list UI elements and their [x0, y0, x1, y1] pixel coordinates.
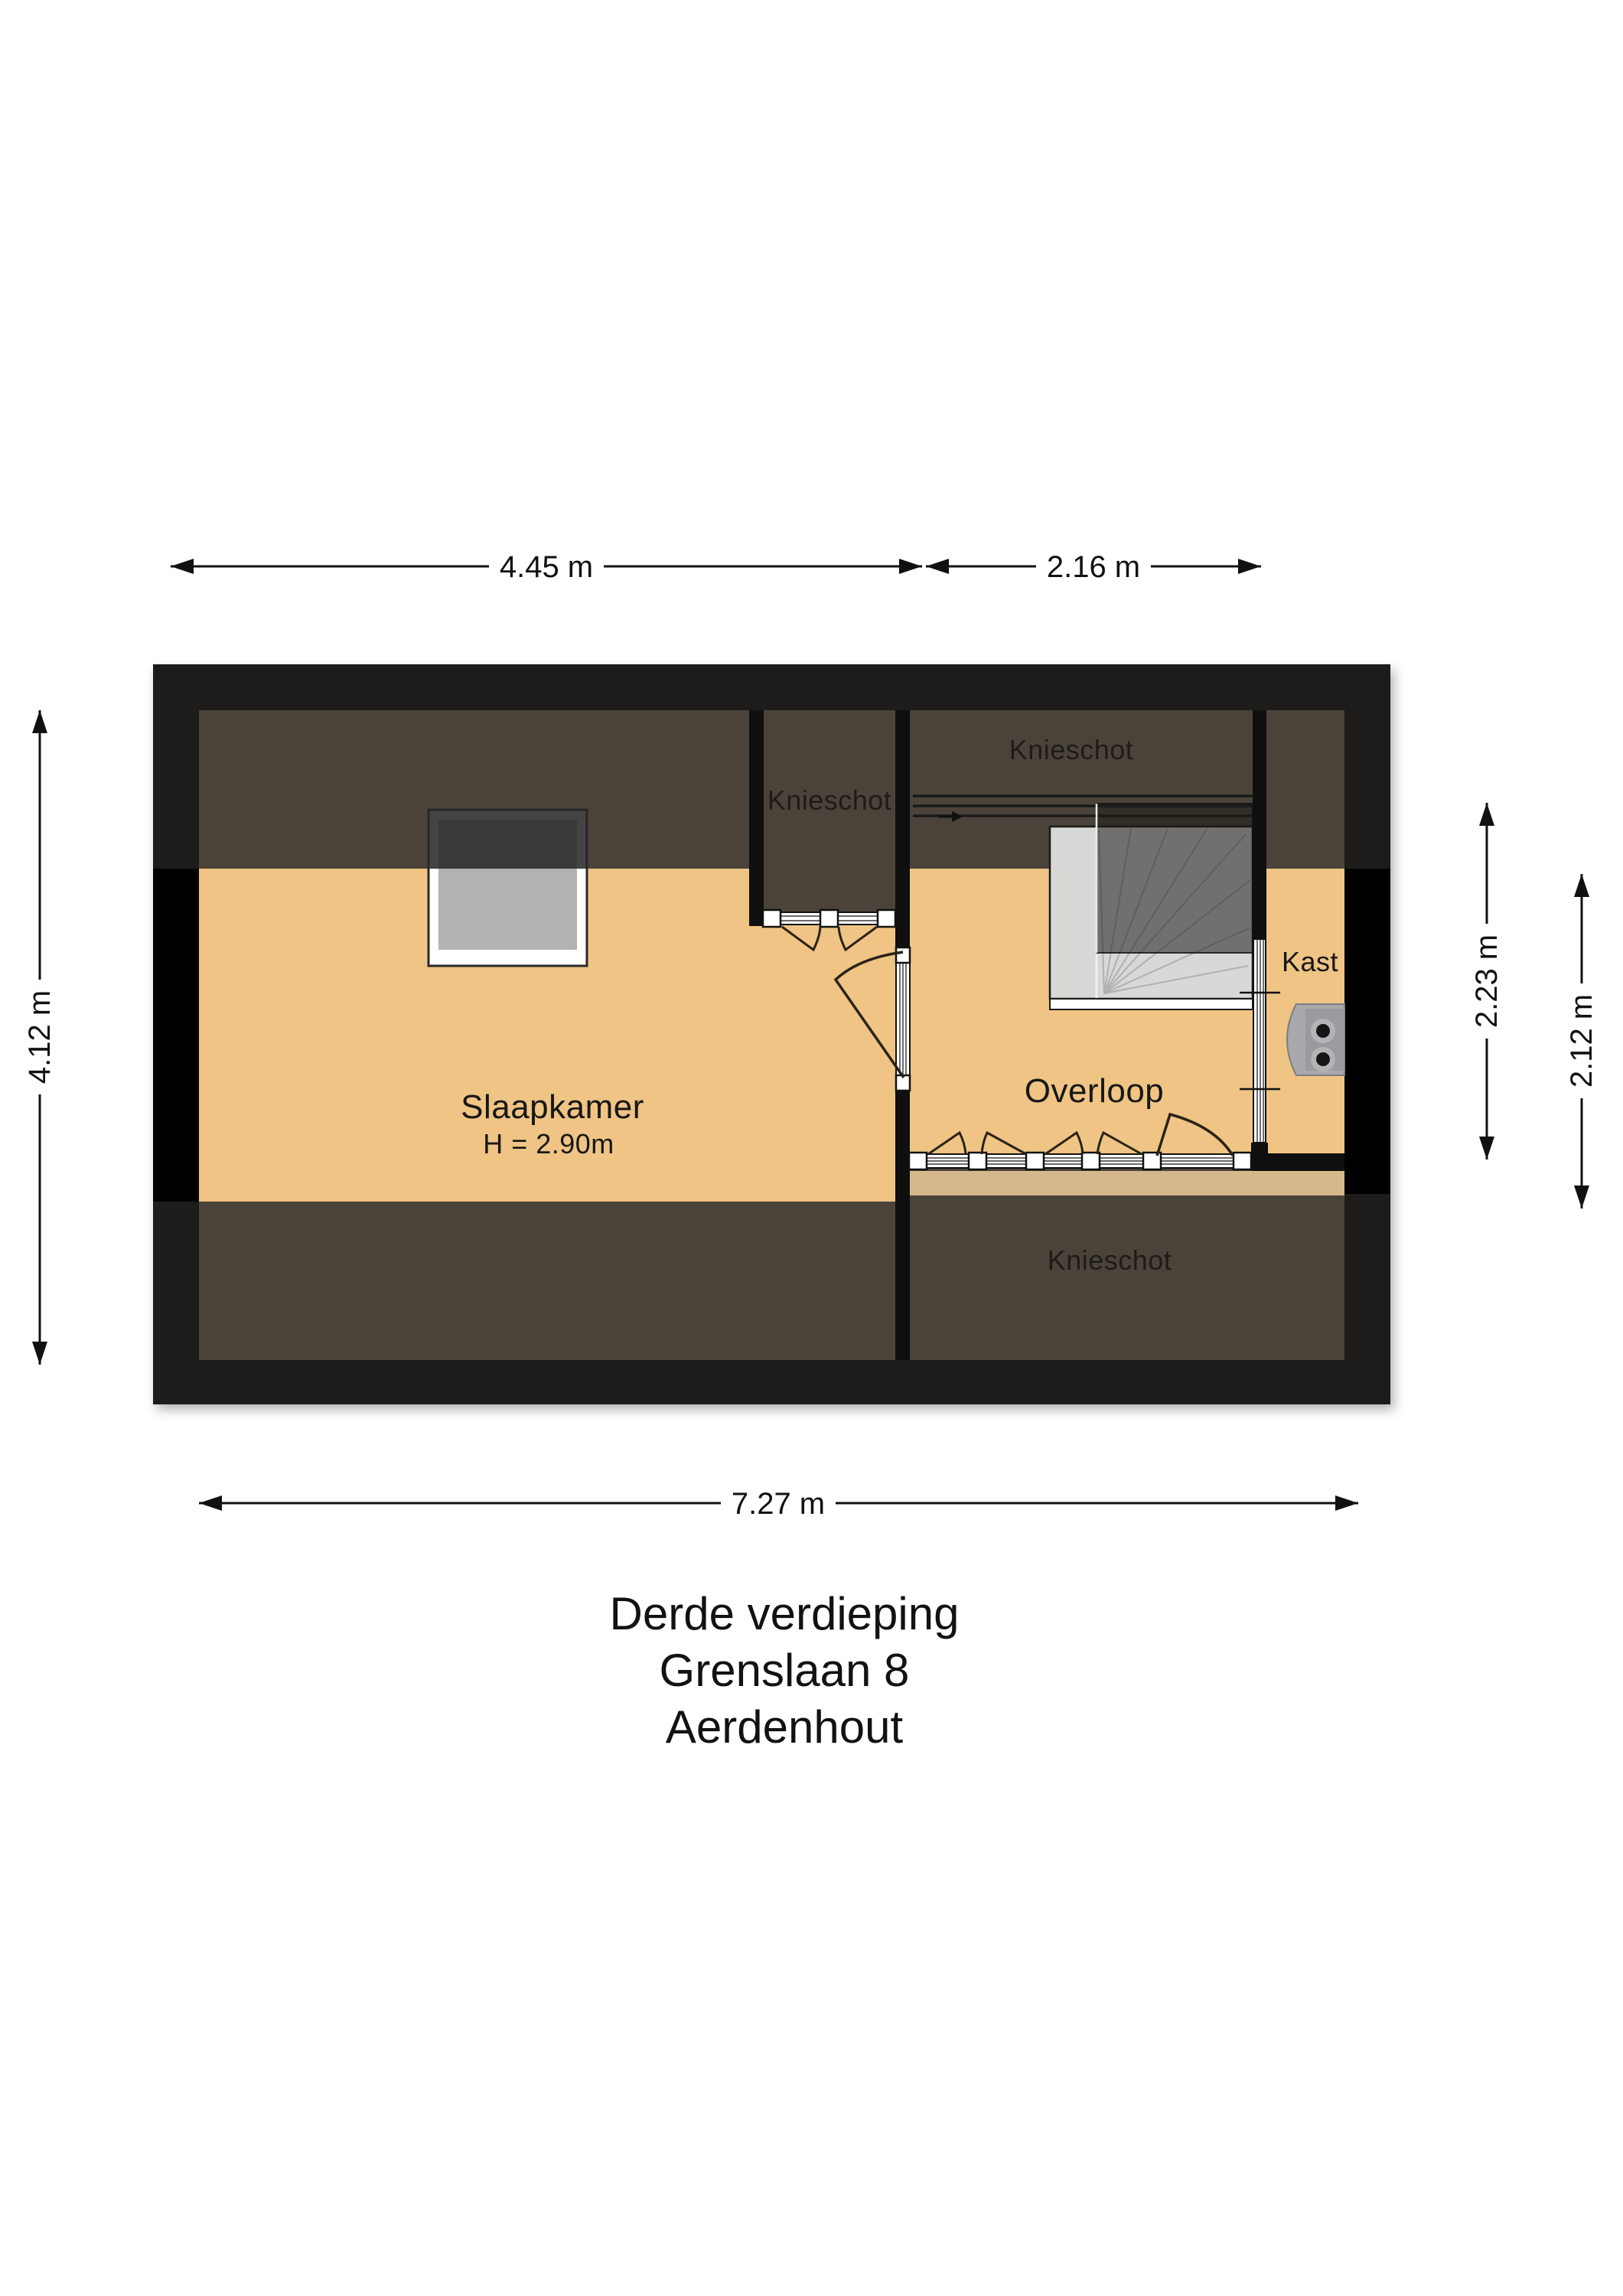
dimension-bottom: 7.27 m — [199, 1485, 1358, 1521]
dimension-right-outer: 2.12 m — [1563, 874, 1600, 1208]
dimension-label: 4.12 m — [23, 990, 57, 1084]
dimension-label: 2.23 m — [1470, 934, 1504, 1028]
label-kast: Kast — [1282, 946, 1338, 978]
wall-corner-block — [1251, 1143, 1268, 1171]
low-headroom-floor-strip — [910, 1171, 1344, 1195]
left-exterior-wall — [153, 869, 199, 1202]
label-knieschot-bottom: Knieschot — [1048, 1244, 1172, 1277]
title-floor: Derde verdieping — [610, 1586, 960, 1642]
dimension-left: 4.12 m — [21, 710, 58, 1365]
floor-plan-page: 4.45 m 2.16 m 7.27 m 4.12 m — [0, 0, 1623, 2296]
dimension-label: 4.45 m — [500, 550, 593, 584]
label-knieschot-middle: Knieschot — [768, 784, 892, 817]
label-slaapkamer-height: H = 2.90m — [483, 1128, 614, 1160]
wall-closet-left — [749, 710, 764, 926]
label-slaapkamer: Slaapkamer — [461, 1088, 644, 1127]
label-knieschot-top: Knieschot — [1009, 734, 1134, 766]
title-address: Grenslaan 8 — [610, 1642, 960, 1699]
dimension-label: 2.12 m — [1565, 994, 1599, 1088]
wall-kast-bottom — [1266, 1153, 1344, 1171]
room-overloop-floor — [910, 869, 1253, 1157]
dimension-top-right: 2.16 m — [926, 548, 1261, 585]
dimension-label: 2.16 m — [1047, 550, 1140, 584]
label-overloop: Overloop — [1025, 1072, 1165, 1110]
wall-divider-upper — [895, 710, 910, 947]
title-city: Aerdenhout — [610, 1699, 960, 1756]
dimension-right-inner: 2.23 m — [1468, 803, 1505, 1159]
dimension-top-left: 4.45 m — [171, 548, 922, 585]
wall-stairs-right — [1253, 710, 1266, 939]
room-kast-floor — [1266, 869, 1344, 1153]
dimension-label: 7.27 m — [732, 1487, 825, 1521]
plan-title: Derde verdieping Grenslaan 8 Aerdenhout — [610, 1586, 960, 1756]
wall-divider-lower — [895, 1091, 910, 1360]
right-exterior-wall — [1344, 869, 1390, 1194]
